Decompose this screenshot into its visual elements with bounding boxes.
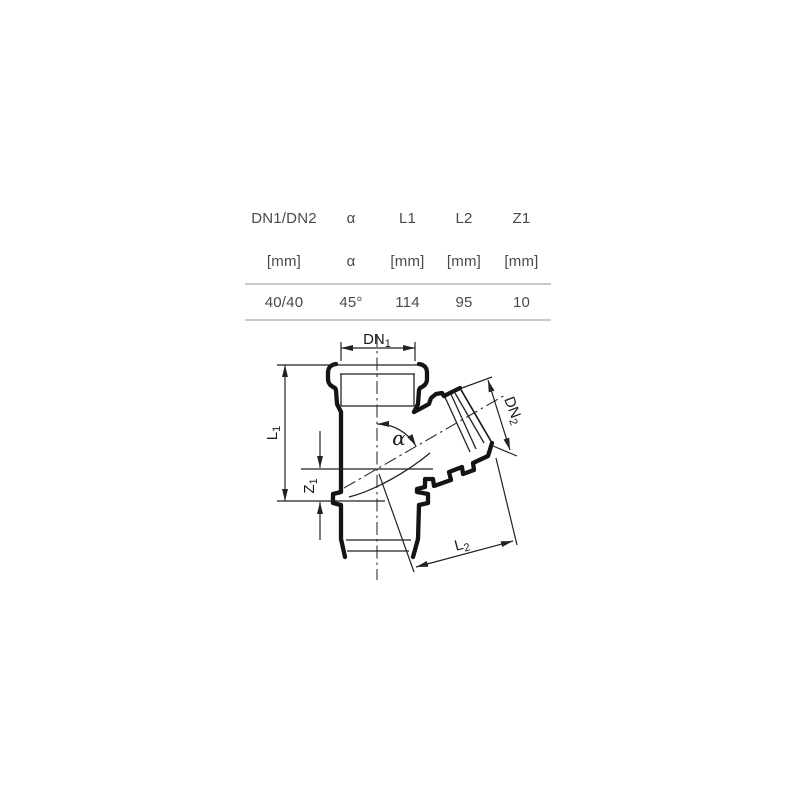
dimension-dn1: DN1: [341, 331, 415, 361]
alpha-label: α: [392, 426, 406, 450]
page: DN1/DN2 α L1 L2 Z1 [mm] α [mm] [mm] [mm]…: [0, 0, 800, 800]
l1-label: L1: [264, 426, 283, 440]
z1-label: Z1: [301, 478, 320, 493]
dn2-label: DN2: [498, 394, 526, 427]
l2-label: L2: [453, 535, 472, 557]
dn1-label: DN1: [363, 331, 391, 350]
pipe-branch-drawing: DN1 L1 Z1 α DN2: [0, 0, 800, 800]
